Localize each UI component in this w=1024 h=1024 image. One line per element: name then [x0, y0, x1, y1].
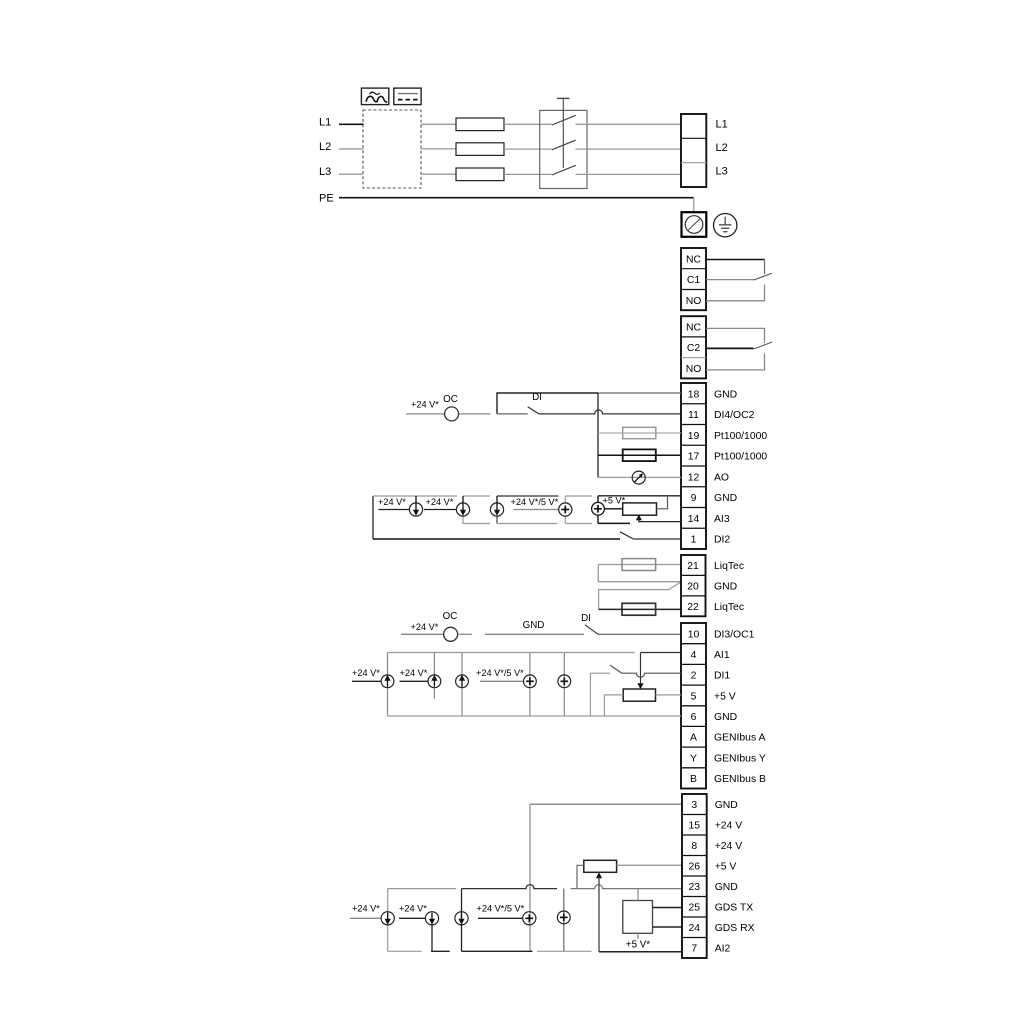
svg-text:+24 V*: +24 V* — [399, 904, 427, 914]
svg-text:+24 V*/5 V*: +24 V*/5 V* — [511, 497, 559, 507]
svg-text:AI1: AI1 — [714, 650, 730, 661]
svg-text:GDS RX: GDS RX — [715, 923, 755, 934]
svg-text:GND: GND — [714, 712, 737, 723]
svg-text:26: 26 — [689, 862, 701, 873]
svg-text:GDS TX: GDS TX — [715, 903, 754, 914]
svg-text:2: 2 — [691, 671, 697, 682]
svg-text:AI2: AI2 — [715, 944, 731, 955]
svg-text:23: 23 — [689, 882, 701, 893]
svg-text:GND: GND — [714, 582, 737, 593]
svg-text:GND: GND — [715, 882, 738, 893]
svg-text:NO: NO — [686, 364, 702, 375]
svg-text:+5 V*: +5 V* — [626, 940, 650, 951]
svg-text:+24 V*: +24 V* — [411, 399, 439, 409]
svg-text:19: 19 — [688, 431, 700, 442]
svg-text:5: 5 — [691, 691, 697, 702]
svg-text:21: 21 — [687, 561, 699, 572]
svg-text:+24 V*/5 V*: +24 V*/5 V* — [476, 668, 524, 678]
svg-text:GENIbus B: GENIbus B — [714, 774, 766, 785]
svg-text:Y: Y — [690, 753, 697, 764]
svg-text:9: 9 — [691, 493, 697, 504]
svg-text:+24 V*/5 V*: +24 V*/5 V* — [477, 904, 525, 914]
svg-text:17: 17 — [688, 452, 700, 463]
svg-text:DI: DI — [532, 392, 542, 403]
svg-text:NC: NC — [686, 323, 702, 334]
svg-text:DI4/OC2: DI4/OC2 — [714, 410, 755, 421]
svg-text:B: B — [690, 774, 697, 785]
svg-text:+24 V*: +24 V* — [400, 668, 428, 678]
svg-text:+24 V: +24 V — [715, 821, 743, 832]
svg-text:20: 20 — [687, 582, 699, 593]
svg-text:LiqTec: LiqTec — [714, 561, 744, 572]
svg-text:AI3: AI3 — [714, 514, 730, 525]
svg-text:DI1: DI1 — [714, 671, 730, 682]
svg-text:1: 1 — [691, 535, 697, 546]
svg-text:NC: NC — [686, 254, 702, 265]
svg-text:25: 25 — [689, 903, 701, 914]
svg-text:Pt100/1000: Pt100/1000 — [714, 431, 767, 442]
svg-text:LiqTec: LiqTec — [714, 602, 744, 613]
svg-text:C2: C2 — [687, 343, 701, 354]
svg-text:DI2: DI2 — [714, 535, 730, 546]
svg-text:GND: GND — [523, 620, 545, 631]
svg-text:+24 V: +24 V — [715, 841, 743, 852]
svg-text:+5 V: +5 V — [714, 691, 736, 702]
svg-text:L3: L3 — [716, 166, 728, 178]
svg-text:L2: L2 — [319, 141, 331, 153]
svg-text:7: 7 — [691, 944, 697, 955]
svg-text:6: 6 — [691, 712, 697, 723]
svg-text:8: 8 — [691, 841, 697, 852]
svg-text:NO: NO — [686, 296, 702, 307]
svg-text:L1: L1 — [716, 118, 728, 130]
svg-text:4: 4 — [691, 650, 697, 661]
svg-text:OC: OC — [443, 611, 458, 622]
svg-text:DI: DI — [581, 613, 591, 624]
svg-text:AO: AO — [714, 472, 729, 483]
svg-text:+5 V: +5 V — [715, 862, 737, 873]
svg-text:L1: L1 — [319, 116, 331, 128]
svg-text:PE: PE — [319, 193, 334, 205]
svg-text:GENIbus A: GENIbus A — [714, 733, 765, 744]
svg-text:12: 12 — [688, 472, 700, 483]
svg-text:24: 24 — [689, 923, 701, 934]
svg-text:14: 14 — [688, 514, 700, 525]
svg-text:+24 V*: +24 V* — [352, 668, 380, 678]
svg-text:L2: L2 — [716, 142, 728, 154]
svg-text:10: 10 — [688, 629, 700, 640]
svg-text:18: 18 — [688, 389, 700, 400]
svg-text:C1: C1 — [687, 275, 701, 286]
svg-text:11: 11 — [688, 410, 699, 421]
svg-text:+24 V*: +24 V* — [378, 497, 406, 507]
svg-text:15: 15 — [689, 821, 701, 832]
svg-text:GND: GND — [714, 389, 737, 400]
svg-text:A: A — [690, 733, 697, 744]
svg-text:3: 3 — [691, 800, 697, 811]
svg-text:OC: OC — [443, 394, 458, 405]
svg-text:L3: L3 — [319, 166, 331, 178]
svg-text:+24 V*: +24 V* — [352, 904, 380, 914]
svg-text:Pt100/1000: Pt100/1000 — [714, 452, 767, 463]
svg-text:GENIbus Y: GENIbus Y — [714, 753, 766, 764]
svg-text:GND: GND — [715, 800, 738, 811]
svg-text:+24 V*: +24 V* — [426, 497, 454, 507]
svg-text:DI3/OC1: DI3/OC1 — [714, 629, 755, 640]
svg-text:+24 V*: +24 V* — [411, 622, 439, 632]
svg-text:GND: GND — [714, 493, 737, 504]
svg-text:22: 22 — [687, 602, 699, 613]
